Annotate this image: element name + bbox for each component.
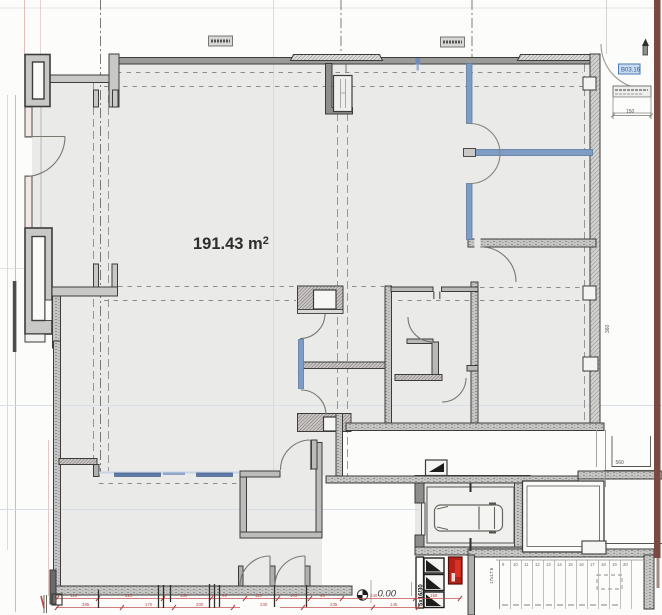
- svg-text:110: 110: [255, 593, 263, 598]
- svg-text:0.00: 0.00: [378, 589, 397, 600]
- svg-text:200: 200: [196, 602, 204, 607]
- svg-text:17: 17: [590, 562, 595, 567]
- svg-text:150: 150: [626, 109, 635, 115]
- svg-text:105: 105: [290, 593, 298, 598]
- svg-text:13: 13: [546, 562, 551, 567]
- svg-text:17x17.6: 17x17.6: [489, 567, 494, 584]
- svg-text:360: 360: [605, 324, 611, 333]
- svg-text:191.43 m2: 191.43 m2: [193, 235, 269, 253]
- svg-text:150: 150: [430, 593, 438, 598]
- svg-text:5x16/30: 5x16/30: [418, 584, 424, 606]
- svg-text:560: 560: [616, 460, 625, 466]
- svg-text:385: 385: [82, 602, 90, 607]
- svg-text:14: 14: [557, 562, 562, 567]
- svg-text:B03.16: B03.16: [621, 68, 641, 74]
- svg-text:15: 15: [568, 562, 573, 567]
- svg-text:235: 235: [330, 602, 338, 607]
- svg-text:18: 18: [601, 562, 606, 567]
- svg-text:11: 11: [524, 562, 529, 567]
- svg-text:12: 12: [535, 562, 540, 567]
- svg-text:225: 225: [125, 593, 133, 598]
- svg-text:96: 96: [320, 593, 325, 598]
- svg-text:20: 20: [623, 562, 628, 567]
- svg-text:19: 19: [612, 562, 617, 567]
- svg-text:16: 16: [579, 562, 584, 567]
- svg-text:160: 160: [180, 593, 188, 598]
- svg-text:170: 170: [145, 602, 153, 607]
- svg-text:230: 230: [260, 602, 268, 607]
- svg-text:145: 145: [390, 602, 398, 607]
- svg-text:240: 240: [370, 593, 378, 598]
- svg-text:10: 10: [513, 562, 518, 567]
- svg-text:96: 96: [222, 593, 227, 598]
- svg-text:120: 120: [70, 593, 78, 598]
